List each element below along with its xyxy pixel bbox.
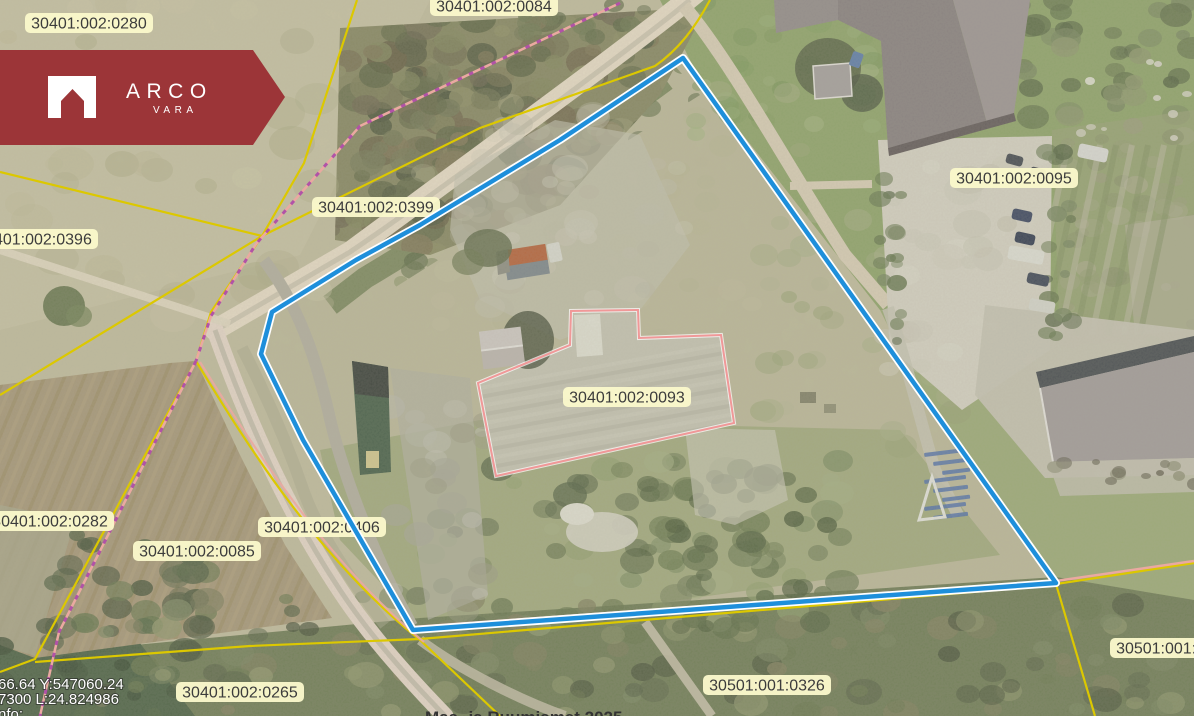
svg-text:30401:002:0399: 30401:002:0399 bbox=[318, 200, 434, 217]
svg-text:Maa- ja Ruumiamet 2025: Maa- ja Ruumiamet 2025 bbox=[425, 708, 622, 716]
svg-text:30501:001:03: 30501:001:03 bbox=[1116, 641, 1194, 658]
svg-text:30401:002:0265: 30401:002:0265 bbox=[182, 685, 298, 702]
svg-text:30401:002:0280: 30401:002:0280 bbox=[31, 16, 147, 33]
svg-text:30401:002:0093: 30401:002:0093 bbox=[569, 390, 685, 407]
svg-text:30401:002:0406: 30401:002:0406 bbox=[264, 520, 380, 537]
svg-text:ARCO: ARCO bbox=[126, 80, 213, 103]
svg-text:30501:001:0326: 30501:001:0326 bbox=[709, 678, 825, 695]
svg-text:30401:002:0084: 30401:002:0084 bbox=[436, 0, 552, 16]
svg-text:30401:002:0396: 30401:002:0396 bbox=[0, 232, 92, 249]
svg-text:30401:002:0085: 30401:002:0085 bbox=[139, 544, 255, 561]
svg-text:30401:002:0095: 30401:002:0095 bbox=[956, 171, 1072, 188]
svg-text:30401:002:0282: 30401:002:0282 bbox=[0, 514, 108, 531]
svg-text:nfo:: nfo: bbox=[0, 706, 23, 716]
svg-text:VARA: VARA bbox=[153, 105, 198, 116]
